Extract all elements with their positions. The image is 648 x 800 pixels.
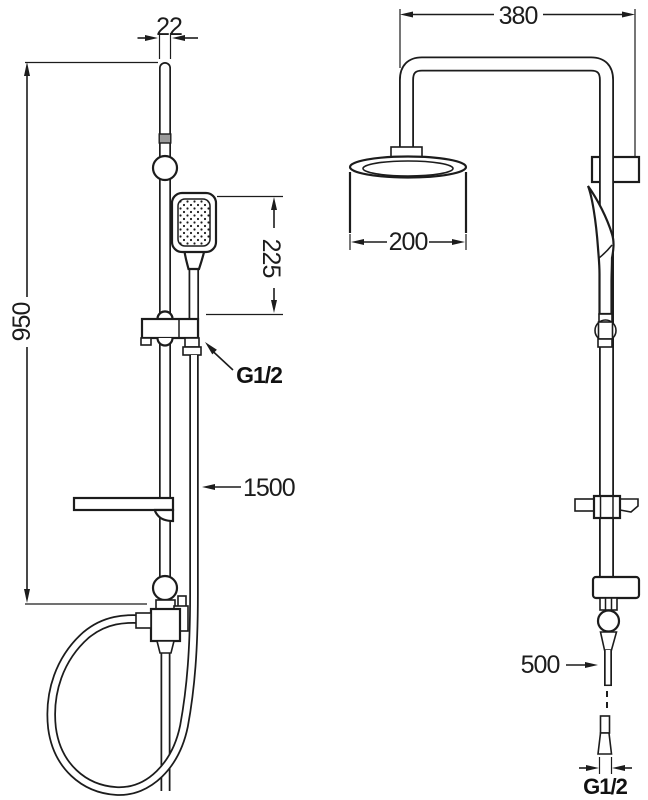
dimension-handset-length: 225 (206, 197, 285, 315)
callout-inlet-pipe-length: 500 (521, 651, 598, 679)
dimension-total-height: 950 (8, 62, 158, 604)
dim-head-diameter: 200 (389, 228, 428, 256)
shower-set-technical-drawing: 950 22 (0, 0, 648, 800)
side-view: 380 200 (350, 2, 639, 799)
dim-hose-length: 1500 (243, 474, 295, 502)
shower-hose (51, 355, 194, 791)
ball-joint-front (153, 576, 177, 600)
label-handset-connection: G1/2 (236, 362, 282, 388)
dimension-inlet-connection: G1/2 (579, 757, 632, 799)
callout-hose-length: 1500 (202, 474, 295, 502)
hose-port (136, 613, 151, 628)
lower-wall-bracket (593, 577, 639, 598)
dimension-rail-width: 22 (138, 13, 199, 59)
soap-shelf (74, 498, 173, 521)
hose-nut (183, 347, 201, 355)
slider-bracket (575, 496, 638, 518)
hand-shower-spray-face (178, 199, 210, 246)
inlet-ball-joint (598, 611, 619, 632)
rail-accent-band (159, 134, 171, 143)
dim-handset-length: 225 (257, 239, 285, 278)
callout-handset-connection: G1/2 (205, 342, 282, 388)
dim-arm-reach: 380 (499, 2, 538, 30)
dim-inlet-pipe-length: 500 (521, 651, 560, 679)
dim-rail-height: 950 (8, 303, 36, 342)
front-view: 950 22 (8, 13, 295, 791)
rail-slider-knob (153, 156, 177, 180)
rain-shower-head (350, 147, 466, 233)
dim-rail-width: 22 (156, 13, 182, 41)
dimension-head-diameter: 200 (350, 228, 466, 256)
diverter-tee (136, 576, 188, 653)
label-inlet-connection: G1/2 (583, 774, 627, 799)
inlet-connector (598, 598, 619, 754)
